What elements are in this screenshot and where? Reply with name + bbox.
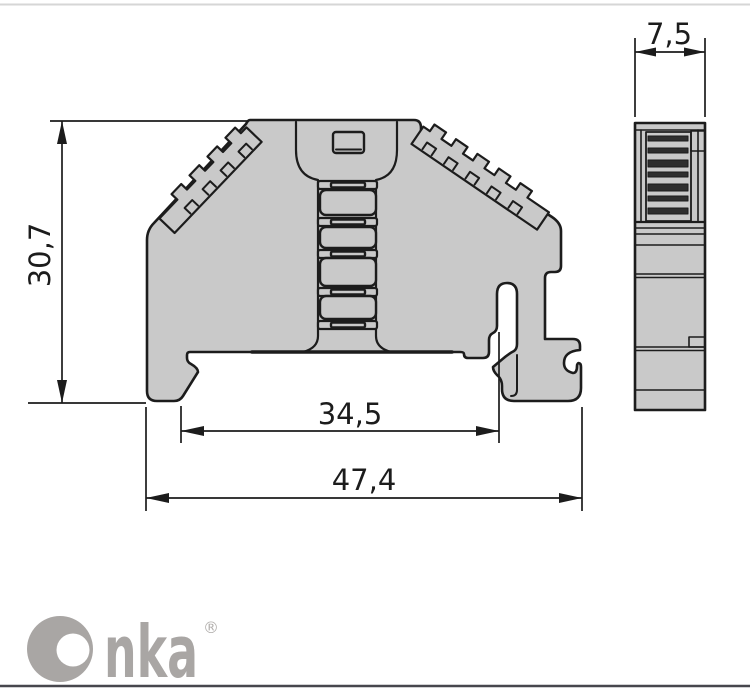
- dim-label-depth: 7,5: [646, 17, 692, 51]
- technical-drawing-svg: 30,7 34,5 47,4 7,5: [0, 0, 750, 689]
- arrow-up: [57, 121, 67, 144]
- arrow-right: [559, 493, 582, 503]
- registered-mark: ®: [203, 618, 219, 637]
- logo-text: nka: [104, 610, 198, 689]
- center-clamp-stack: [318, 181, 377, 329]
- dim-label-inner-width: 34,5: [318, 397, 383, 431]
- dim-label-height: 30,7: [23, 223, 57, 288]
- front-view: [147, 120, 581, 401]
- dim-label-overall-width: 47,4: [332, 463, 397, 497]
- drawing-canvas: 30,7 34,5 47,4 7,5: [0, 0, 750, 689]
- side-view: [635, 123, 705, 410]
- dimension-depth: 7,5: [635, 17, 705, 117]
- arrow-left: [146, 493, 169, 503]
- arrow-down: [57, 380, 67, 403]
- onka-logo: nka ®: [27, 610, 219, 689]
- arrow-left: [181, 426, 204, 436]
- arrow-right: [476, 426, 499, 436]
- logo-o-counter: [57, 634, 90, 667]
